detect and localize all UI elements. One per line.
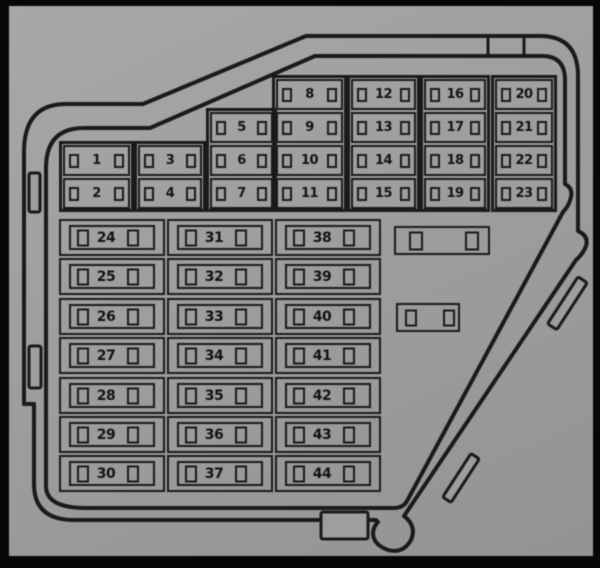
fuse-contact	[400, 154, 410, 168]
fuse-contact	[185, 268, 197, 285]
fuse-body: 44	[285, 461, 371, 486]
fuse-number: 17	[442, 121, 468, 134]
fuse-number: 30	[93, 463, 119, 484]
fuse-40: 40	[275, 298, 381, 335]
fuse-contact	[293, 387, 305, 404]
fuse-12: 12	[351, 79, 416, 110]
fuse-number: 7	[228, 187, 255, 200]
fuse-9: 9	[276, 112, 343, 143]
fuse-contact	[293, 465, 305, 482]
fuse-contact	[537, 88, 547, 102]
fuse-number: 27	[93, 345, 119, 366]
fuse-1: 1	[63, 145, 130, 176]
fuse-contact	[216, 154, 226, 168]
fuse-2: 2	[63, 178, 130, 209]
fuse-contact	[127, 268, 139, 285]
fuse-contact	[343, 347, 355, 364]
fuse-contact	[357, 154, 367, 168]
fuse-number: 44	[309, 463, 335, 484]
slot-contact	[409, 231, 423, 250]
fuse-contact	[77, 229, 89, 246]
fuse-body: 37	[177, 461, 263, 486]
fuse-contact	[257, 187, 267, 201]
fuse-number: 2	[81, 187, 112, 200]
fuse-contact	[127, 387, 139, 404]
fuse-body: 36	[177, 422, 263, 447]
fuse-body: 28	[69, 383, 155, 408]
slot-contact	[465, 231, 479, 250]
fuse-contact	[127, 465, 139, 482]
fuse-contact	[235, 347, 247, 364]
fuse-contact	[343, 268, 355, 285]
fuse-number: 1	[81, 154, 112, 167]
fuse-body: 30	[69, 461, 155, 486]
fuse-number: 21	[513, 121, 535, 134]
fuse-43: 43	[275, 416, 381, 453]
slot-contact	[443, 309, 455, 326]
fuse-17: 17	[424, 112, 486, 143]
fuse-11: 11	[276, 178, 343, 209]
fuse-42: 42	[275, 377, 381, 414]
fuse-contact	[357, 187, 367, 201]
fuse-contact	[343, 465, 355, 482]
fuse-number: 12	[369, 88, 398, 101]
fuse-number: 41	[309, 345, 335, 366]
fuse-number: 38	[309, 227, 335, 248]
fuse-number: 26	[93, 306, 119, 327]
fuse-22: 22	[495, 145, 553, 176]
fuse-contact	[293, 229, 305, 246]
fuse-contact	[185, 465, 197, 482]
fuse-contact	[144, 154, 154, 168]
fuse-body: 42	[285, 383, 371, 408]
fuse-number: 13	[369, 121, 398, 134]
fuse-contact	[327, 154, 337, 168]
fuse-number: 8	[294, 88, 325, 101]
fuse-contact	[235, 387, 247, 404]
fuse-44: 44	[275, 455, 381, 492]
fuse-contact	[327, 121, 337, 135]
fuse-16: 16	[424, 79, 486, 110]
fuse-24: 24	[59, 219, 165, 256]
fuse-41: 41	[275, 337, 381, 374]
fuse-number: 4	[156, 187, 184, 200]
fuse-number: 42	[309, 385, 335, 406]
fuse-contact	[430, 121, 440, 135]
fuse-contact	[257, 154, 267, 168]
fuse-contact	[357, 88, 367, 102]
fuse-14: 14	[351, 145, 416, 176]
fusebox-photo-frame: 1234567891011121314151617181920212223242…	[0, 0, 600, 568]
fuse-number: 10	[294, 154, 325, 167]
fuse-6: 6	[210, 145, 273, 176]
fuse-body: 41	[285, 343, 371, 368]
fuse-contact	[470, 154, 480, 168]
fuse-number: 15	[369, 187, 398, 200]
fuse-25: 25	[59, 258, 165, 295]
fuse-number: 31	[201, 227, 227, 248]
fuse-36: 36	[167, 416, 273, 453]
fuse-body: 31	[177, 225, 263, 250]
fuse-10: 10	[276, 145, 343, 176]
fuse-body: 26	[69, 304, 155, 329]
fuse-contact	[343, 387, 355, 404]
fuse-contact	[185, 229, 197, 246]
fuse-contact	[127, 347, 139, 364]
fuse-contact	[501, 187, 511, 201]
fuse-number: 35	[201, 385, 227, 406]
fuse-contact	[470, 121, 480, 135]
fuse-contact	[537, 187, 547, 201]
fuse-number: 11	[294, 187, 325, 200]
fuse-contact	[186, 187, 196, 201]
fuse-19: 19	[424, 178, 486, 209]
fuse-number: 23	[513, 187, 535, 200]
fuse-number: 5	[228, 121, 255, 134]
empty-slot-upper	[394, 226, 490, 255]
fuse-contact	[186, 154, 196, 168]
fuse-34: 34	[167, 337, 273, 374]
fuse-contact	[537, 154, 547, 168]
fuse-31: 31	[167, 219, 273, 256]
fuse-contact	[357, 121, 367, 135]
fuse-contact	[235, 426, 247, 443]
fuse-37: 37	[167, 455, 273, 492]
fuse-15: 15	[351, 178, 416, 209]
fuse-number: 3	[156, 154, 184, 167]
fuse-contact	[400, 121, 410, 135]
fuse-number: 36	[201, 424, 227, 445]
fuse-contact	[77, 465, 89, 482]
fuse-contact	[470, 88, 480, 102]
fuse-contact	[501, 121, 511, 135]
fuse-contact	[235, 268, 247, 285]
fuse-body: 43	[285, 422, 371, 447]
fusebox-paper: 1234567891011121314151617181920212223242…	[9, 6, 593, 556]
fuse-28: 28	[59, 377, 165, 414]
fuse-contact	[127, 229, 139, 246]
fuse-contact	[127, 308, 139, 325]
fuse-contact	[343, 229, 355, 246]
fuse-contact	[430, 187, 440, 201]
fuse-contact	[430, 88, 440, 102]
fuse-body: 38	[285, 225, 371, 250]
fuse-body: 39	[285, 264, 371, 289]
fuse-20: 20	[495, 79, 553, 110]
fuse-contact	[293, 426, 305, 443]
fuse-contact	[77, 426, 89, 443]
fuse-contact	[282, 154, 292, 168]
fuse-contact	[216, 187, 226, 201]
fuse-contact	[282, 121, 292, 135]
fuse-contact	[327, 187, 337, 201]
fuse-30: 30	[59, 455, 165, 492]
fuse-23: 23	[495, 178, 553, 209]
fuse-number: 28	[93, 385, 119, 406]
fuse-body: 32	[177, 264, 263, 289]
fuse-number: 19	[442, 187, 468, 200]
fuse-contact	[114, 187, 124, 201]
fuse-body: 34	[177, 343, 263, 368]
fuse-contact	[282, 88, 292, 102]
fuse-contact	[69, 154, 79, 168]
fuse-body: 27	[69, 343, 155, 368]
fuse-contact	[77, 347, 89, 364]
fuse-contact	[235, 465, 247, 482]
fuse-13: 13	[351, 112, 416, 143]
fuse-29: 29	[59, 416, 165, 453]
fuse-26: 26	[59, 298, 165, 335]
fuse-body: 40	[285, 304, 371, 329]
fuse-contact	[400, 88, 410, 102]
fuse-number: 32	[201, 266, 227, 287]
fuse-number: 9	[294, 121, 325, 134]
fuse-body: 25	[69, 264, 155, 289]
fuse-contact	[293, 268, 305, 285]
fuse-number: 37	[201, 463, 227, 484]
fuse-contact	[144, 187, 154, 201]
fuse-contact	[216, 121, 226, 135]
fuse-number: 16	[442, 88, 468, 101]
fuse-number: 18	[442, 154, 468, 167]
fuse-5: 5	[210, 112, 273, 143]
fuse-contact	[343, 308, 355, 325]
fuse-33: 33	[167, 298, 273, 335]
fuse-number: 6	[228, 154, 255, 167]
fuse-contact	[430, 154, 440, 168]
fuse-number: 39	[309, 266, 335, 287]
slot-contact	[405, 309, 417, 326]
fuse-number: 20	[513, 88, 535, 101]
fuse-diagram: 1234567891011121314151617181920212223242…	[9, 6, 593, 556]
fuse-number: 40	[309, 306, 335, 327]
fuse-contact	[77, 308, 89, 325]
fuse-contact	[127, 426, 139, 443]
fuse-32: 32	[167, 258, 273, 295]
fuse-body: 33	[177, 304, 263, 329]
fuse-contact	[185, 308, 197, 325]
fuse-contact	[537, 121, 547, 135]
fuse-contact	[235, 308, 247, 325]
fuse-contact	[282, 187, 292, 201]
fuse-8: 8	[276, 79, 343, 110]
fuse-contact	[400, 187, 410, 201]
fuse-4: 4	[138, 178, 202, 209]
fuse-contact	[293, 347, 305, 364]
fuse-contact	[185, 347, 197, 364]
fuse-contact	[293, 308, 305, 325]
fuse-number: 24	[93, 227, 119, 248]
fuse-body: 24	[69, 225, 155, 250]
fuse-39: 39	[275, 258, 381, 295]
fuse-number: 29	[93, 424, 119, 445]
fuse-21: 21	[495, 112, 553, 143]
fuse-body: 35	[177, 383, 263, 408]
fuse-contact	[235, 229, 247, 246]
fuse-contact	[327, 88, 337, 102]
fuse-contact	[69, 187, 79, 201]
fuse-35: 35	[167, 377, 273, 414]
fuse-27: 27	[59, 337, 165, 374]
fuse-contact	[185, 426, 197, 443]
fuse-contact	[114, 154, 124, 168]
fuse-number: 14	[369, 154, 398, 167]
fuse-contact	[343, 426, 355, 443]
fuse-contact	[77, 268, 89, 285]
fuse-contact	[470, 187, 480, 201]
fuse-18: 18	[424, 145, 486, 176]
fuse-contact	[77, 387, 89, 404]
fuse-7: 7	[210, 178, 273, 209]
fuse-contact	[185, 387, 197, 404]
fuse-38: 38	[275, 219, 381, 256]
fuse-number: 22	[513, 154, 535, 167]
fuse-number: 34	[201, 345, 227, 366]
fuse-number: 43	[309, 424, 335, 445]
fuse-contact	[501, 88, 511, 102]
fuse-3: 3	[138, 145, 202, 176]
fuse-body: 29	[69, 422, 155, 447]
empty-slot-lower	[396, 303, 460, 332]
fuse-contact	[501, 154, 511, 168]
fuse-contact	[257, 121, 267, 135]
fuse-number: 33	[201, 306, 227, 327]
fuse-number: 25	[93, 266, 119, 287]
